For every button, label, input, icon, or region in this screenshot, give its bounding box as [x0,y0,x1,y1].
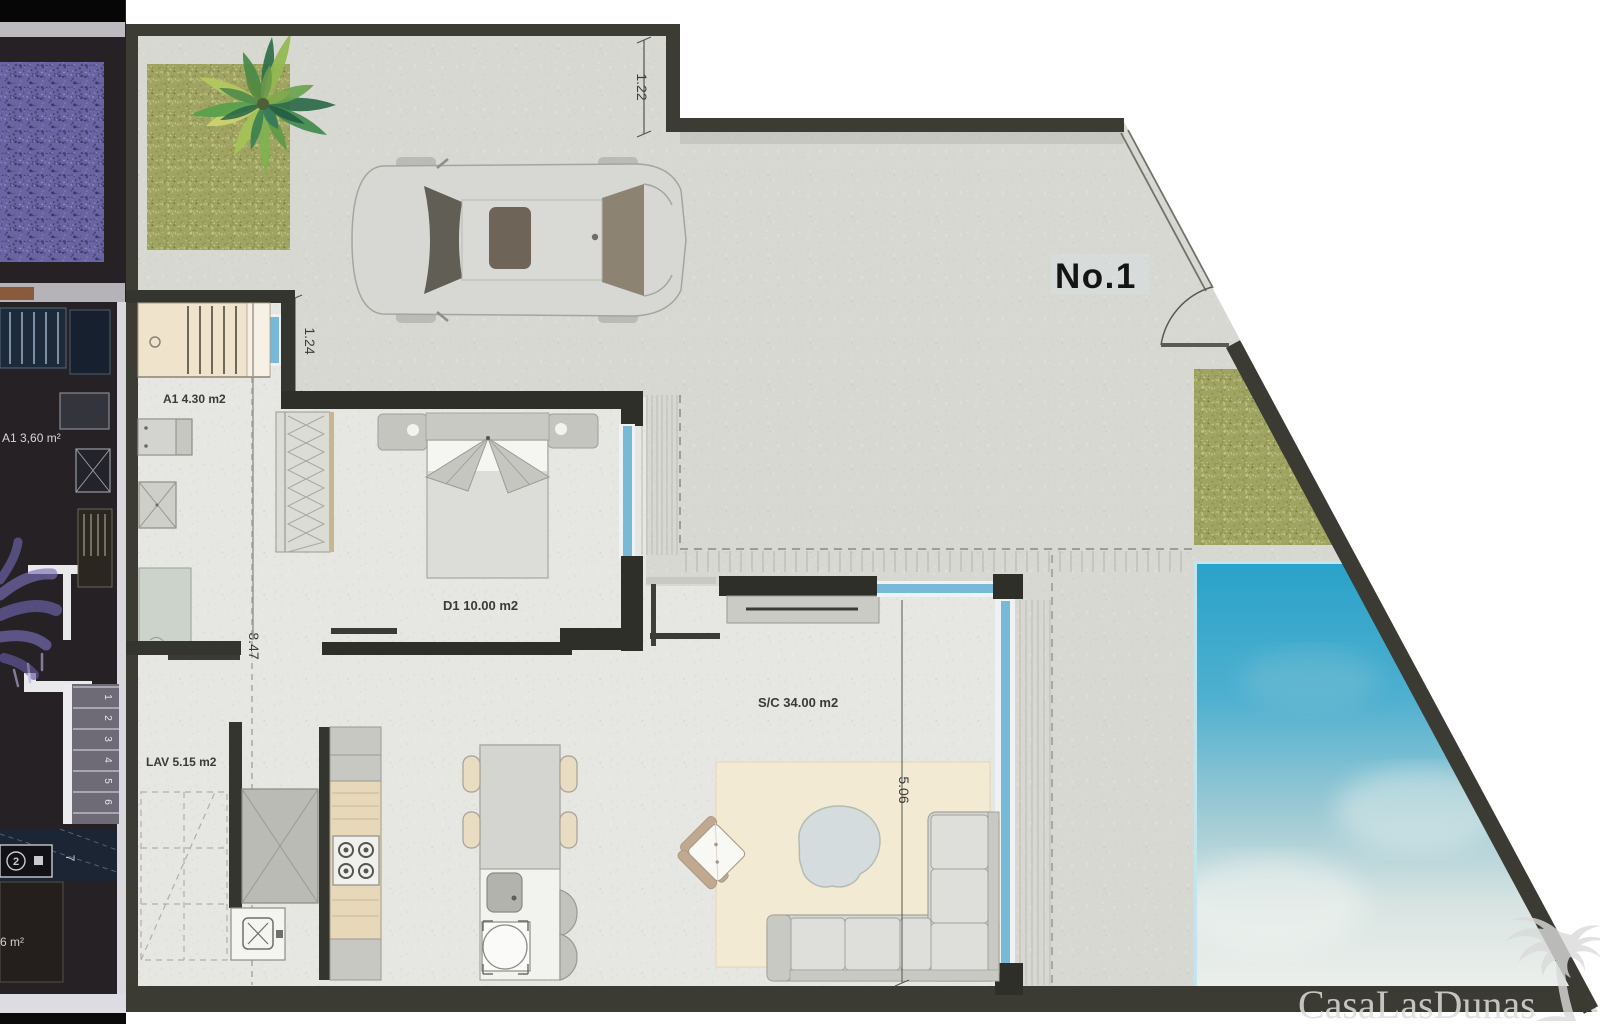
svg-text:LAV 5.15 m2: LAV 5.15 m2 [146,755,217,769]
svg-text:8.47: 8.47 [246,632,262,659]
svg-text:2: 2 [102,715,113,721]
svg-text:5: 5 [102,778,113,784]
svg-text:5.06: 5.06 [896,776,912,803]
svg-text:6: 6 [102,799,113,805]
svg-text:CasaLasDunas: CasaLasDunas [1298,982,1536,1024]
svg-text:1.22: 1.22 [634,73,650,100]
svg-text:No.1: No.1 [1055,257,1137,296]
svg-text:1.24: 1.24 [302,327,318,354]
svg-text:3: 3 [102,736,113,742]
svg-text:4: 4 [102,757,113,763]
svg-text:A1 3,60 m²: A1 3,60 m² [2,431,61,445]
svg-text:1: 1 [102,694,113,700]
svg-text:7: 7 [63,855,77,862]
svg-text:S/C 34.00 m2: S/C 34.00 m2 [758,695,838,710]
svg-text:2: 2 [13,856,19,868]
svg-text:D1 10.00 m2: D1 10.00 m2 [443,598,518,613]
svg-text:6 m²: 6 m² [0,935,24,949]
svg-text:A1 4.30 m2: A1 4.30 m2 [163,392,226,406]
